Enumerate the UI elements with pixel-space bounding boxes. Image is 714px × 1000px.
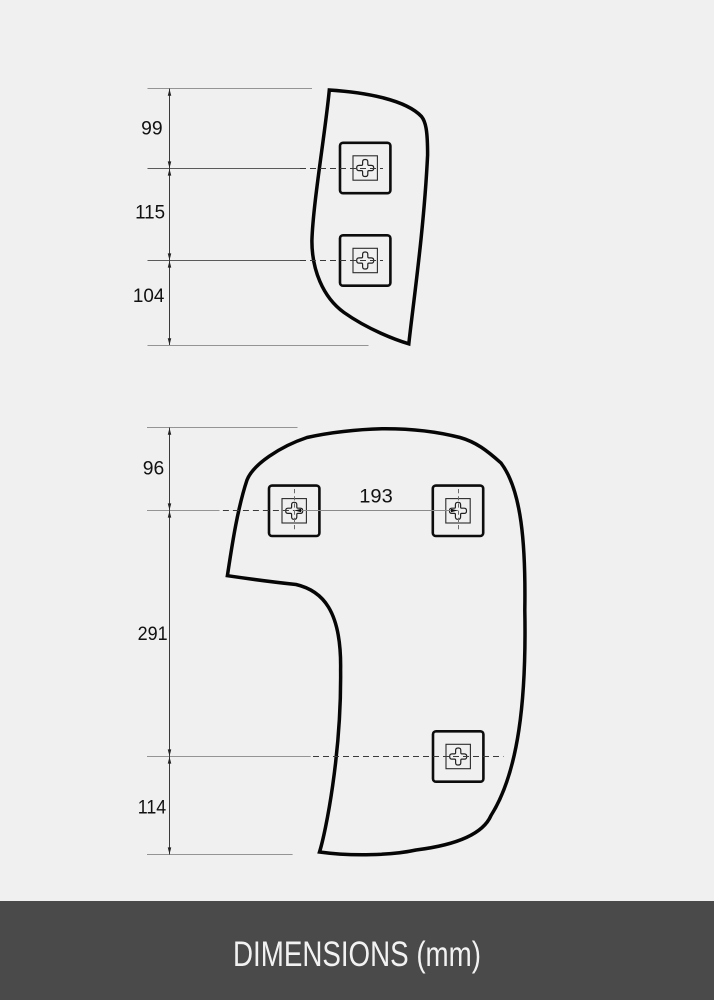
- svg-text:115: 115: [135, 202, 165, 224]
- svg-text:104: 104: [133, 285, 165, 307]
- svg-text:114: 114: [138, 797, 167, 819]
- svg-text:99: 99: [141, 118, 163, 140]
- svg-text:DIMENSIONS (mm): DIMENSIONS (mm): [233, 935, 481, 974]
- svg-text:291: 291: [138, 623, 168, 645]
- svg-text:193: 193: [359, 486, 393, 508]
- svg-text:96: 96: [143, 458, 165, 480]
